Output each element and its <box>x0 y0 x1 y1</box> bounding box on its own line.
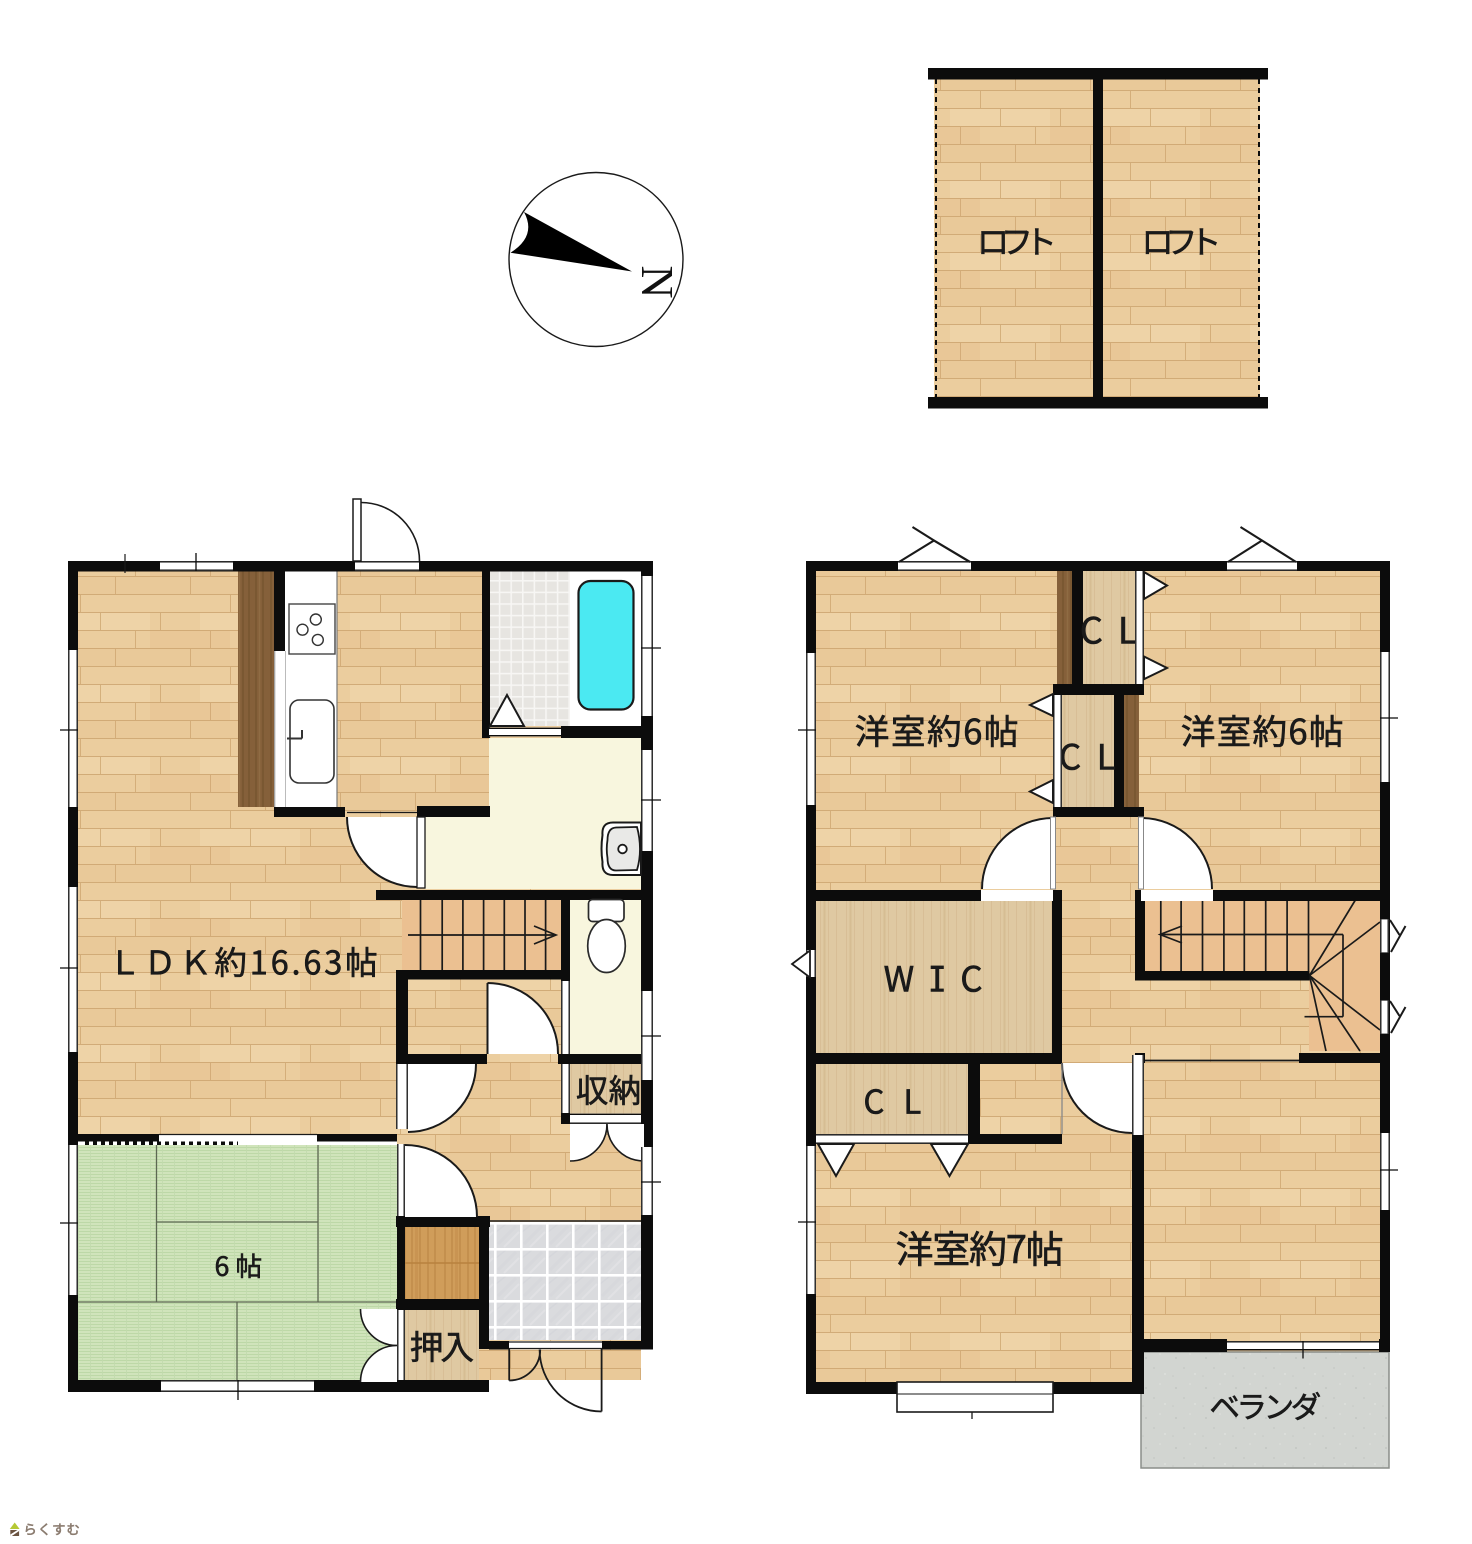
svg-text:N: N <box>632 265 683 298</box>
